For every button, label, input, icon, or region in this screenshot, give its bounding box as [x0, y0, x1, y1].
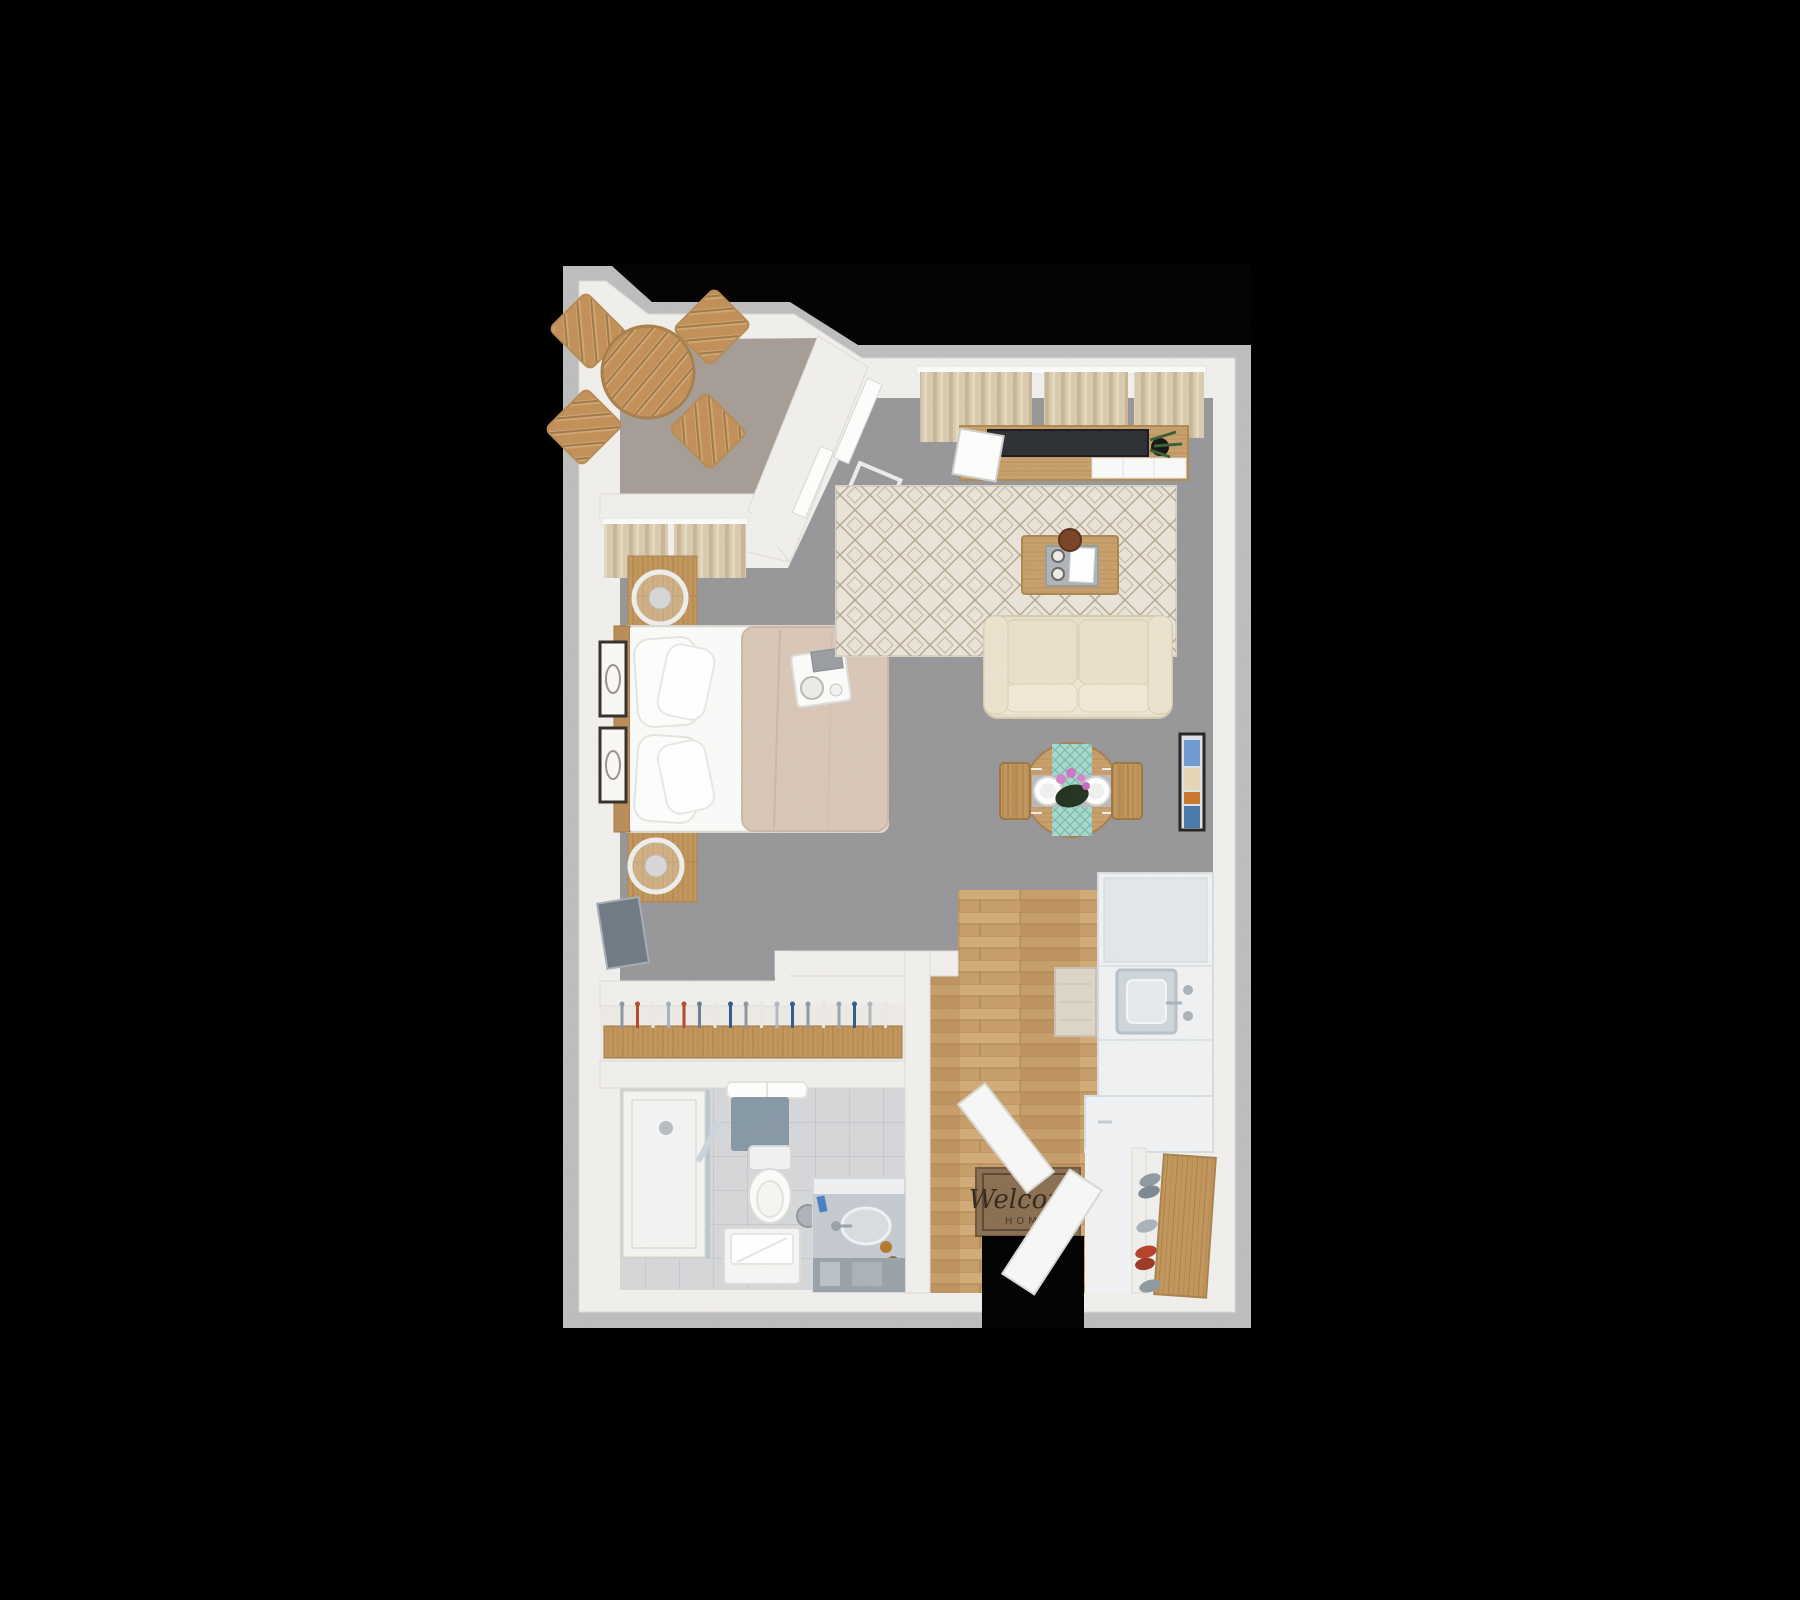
render-grain-overlay	[563, 263, 1251, 1328]
floor-plan-canvas: WelcomeHOME	[0, 0, 1800, 1600]
